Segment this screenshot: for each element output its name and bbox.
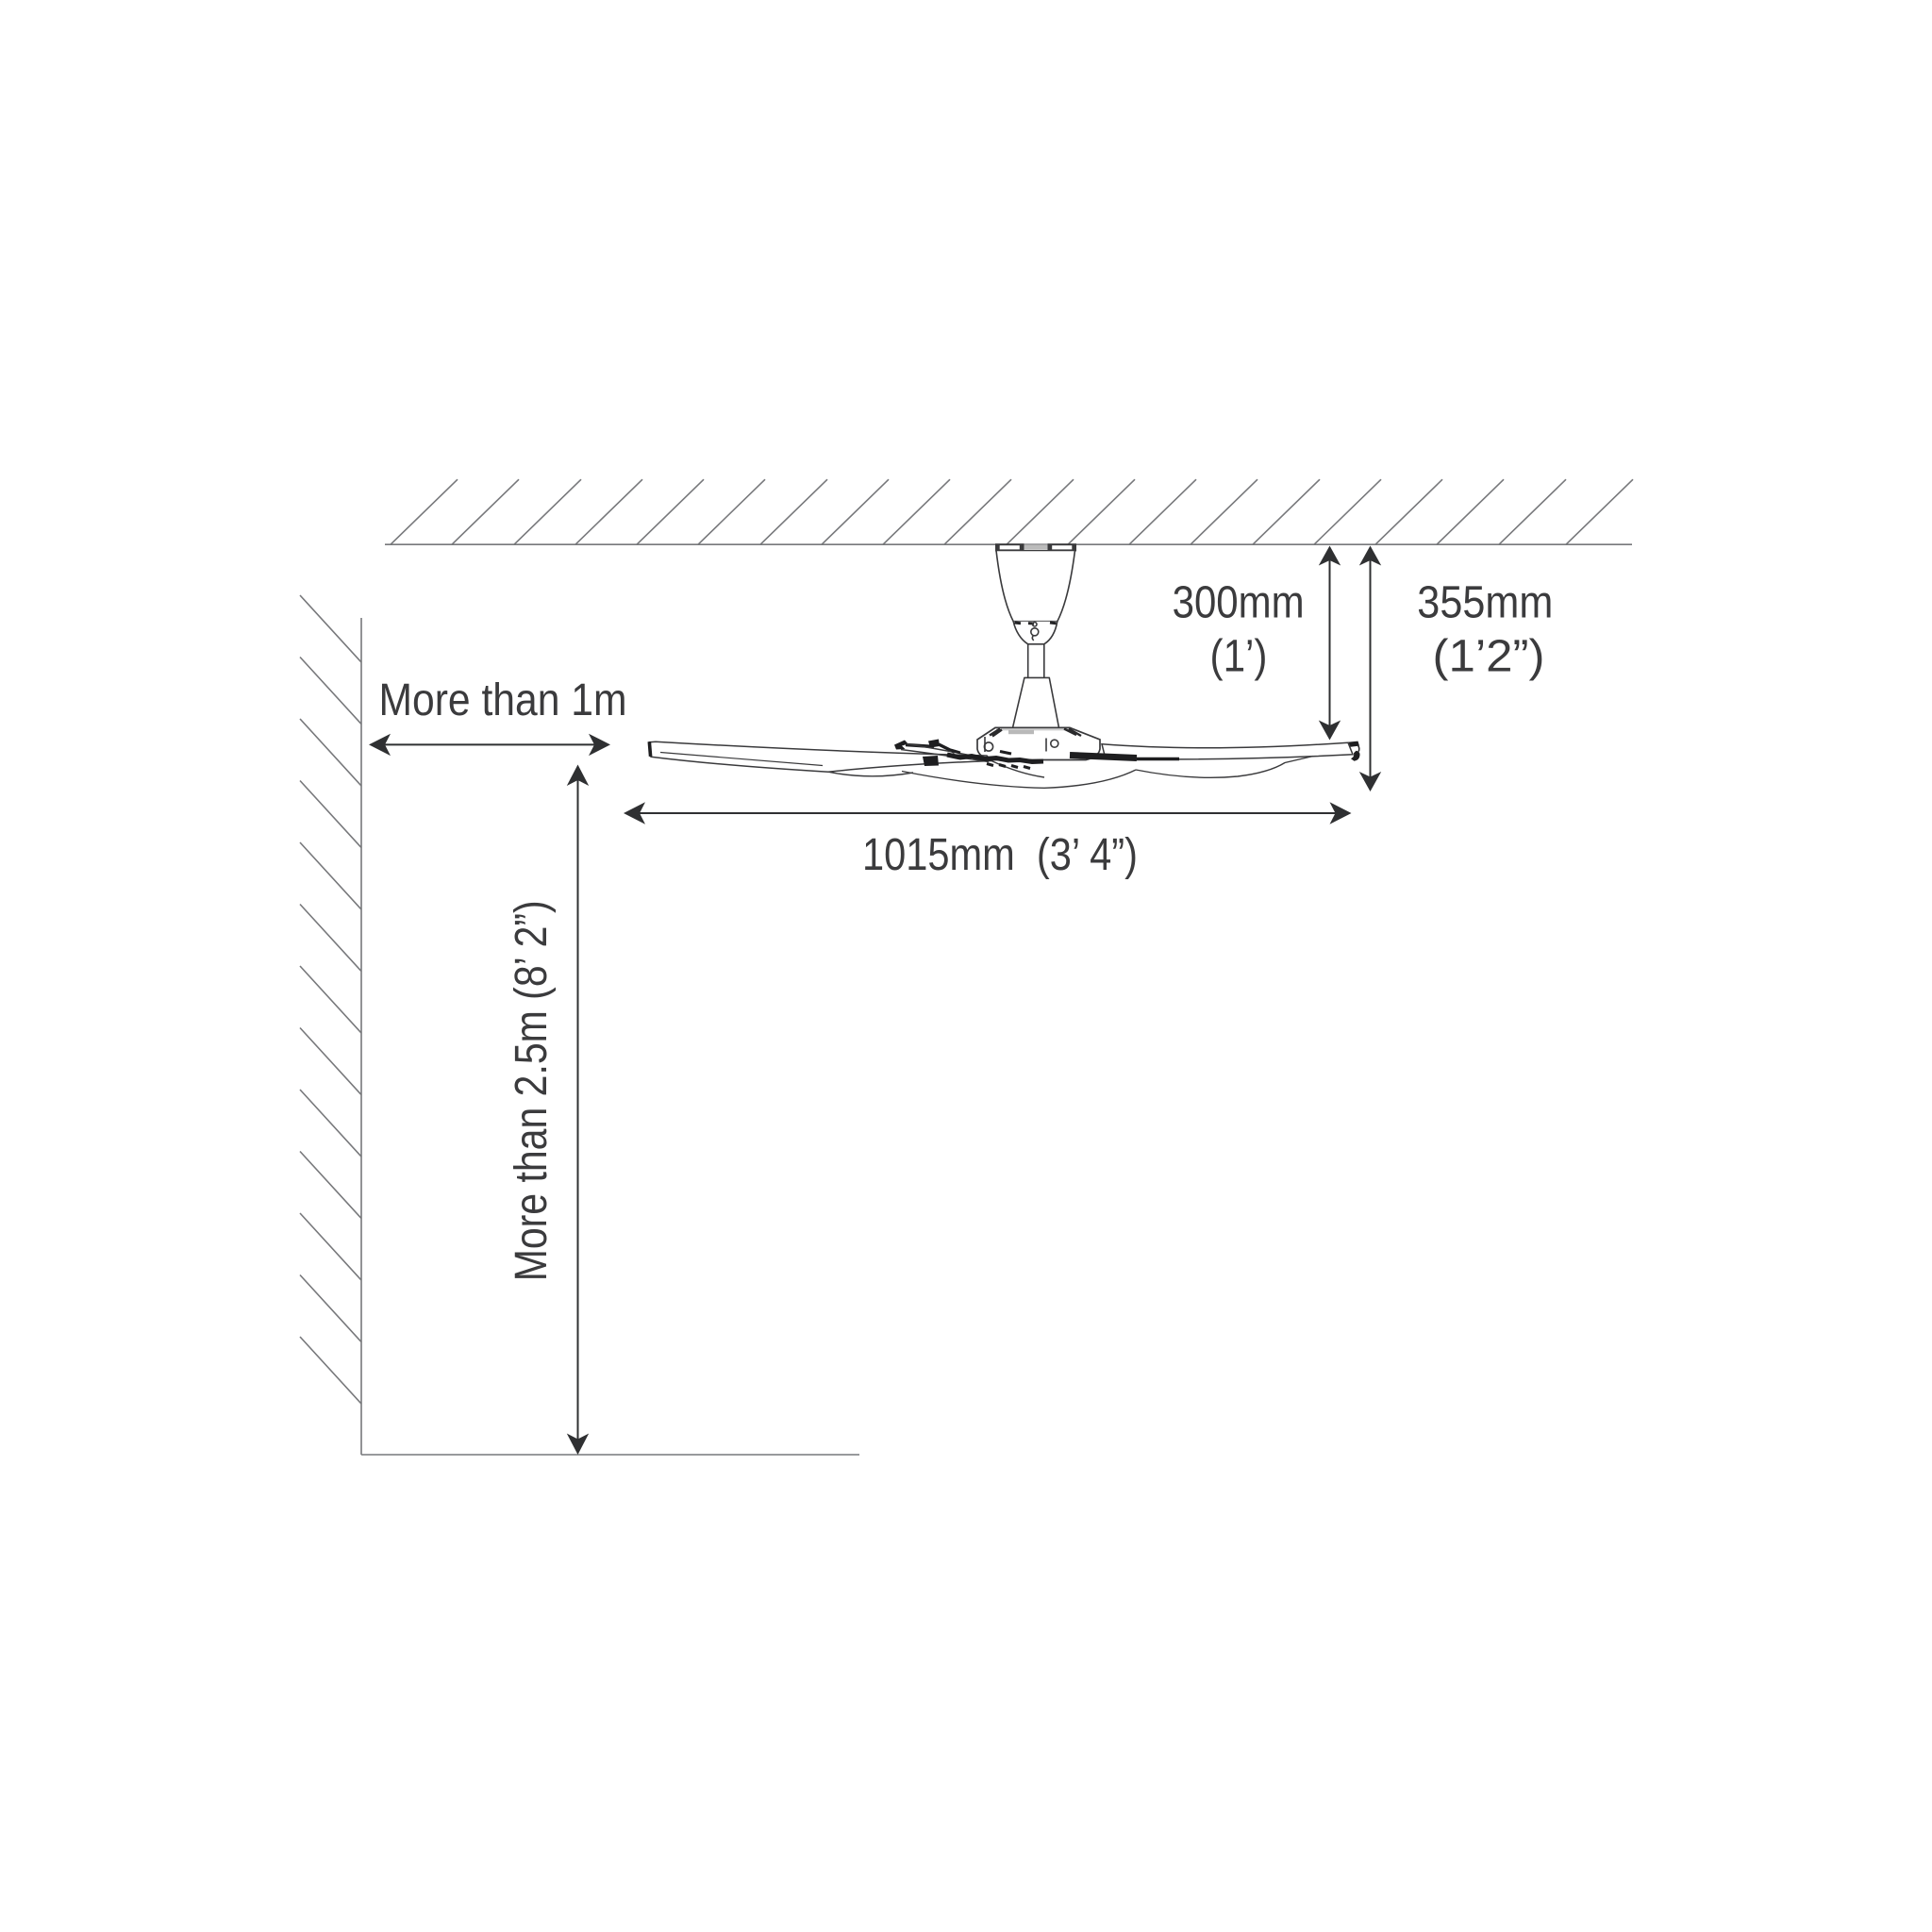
- svg-text:More than 2.5m (8’ 2”): More than 2.5m (8’ 2”): [507, 900, 557, 1281]
- svg-text:(1’2”): (1’2”): [1433, 632, 1545, 682]
- svg-text:1015mm (3’ 4”): 1015mm (3’ 4”): [862, 830, 1138, 880]
- svg-text:(1’): (1’): [1210, 632, 1268, 682]
- svg-text:300mm: 300mm: [1173, 578, 1305, 628]
- svg-text:More than 1m: More than 1m: [379, 675, 627, 725]
- svg-text:355mm: 355mm: [1417, 578, 1553, 628]
